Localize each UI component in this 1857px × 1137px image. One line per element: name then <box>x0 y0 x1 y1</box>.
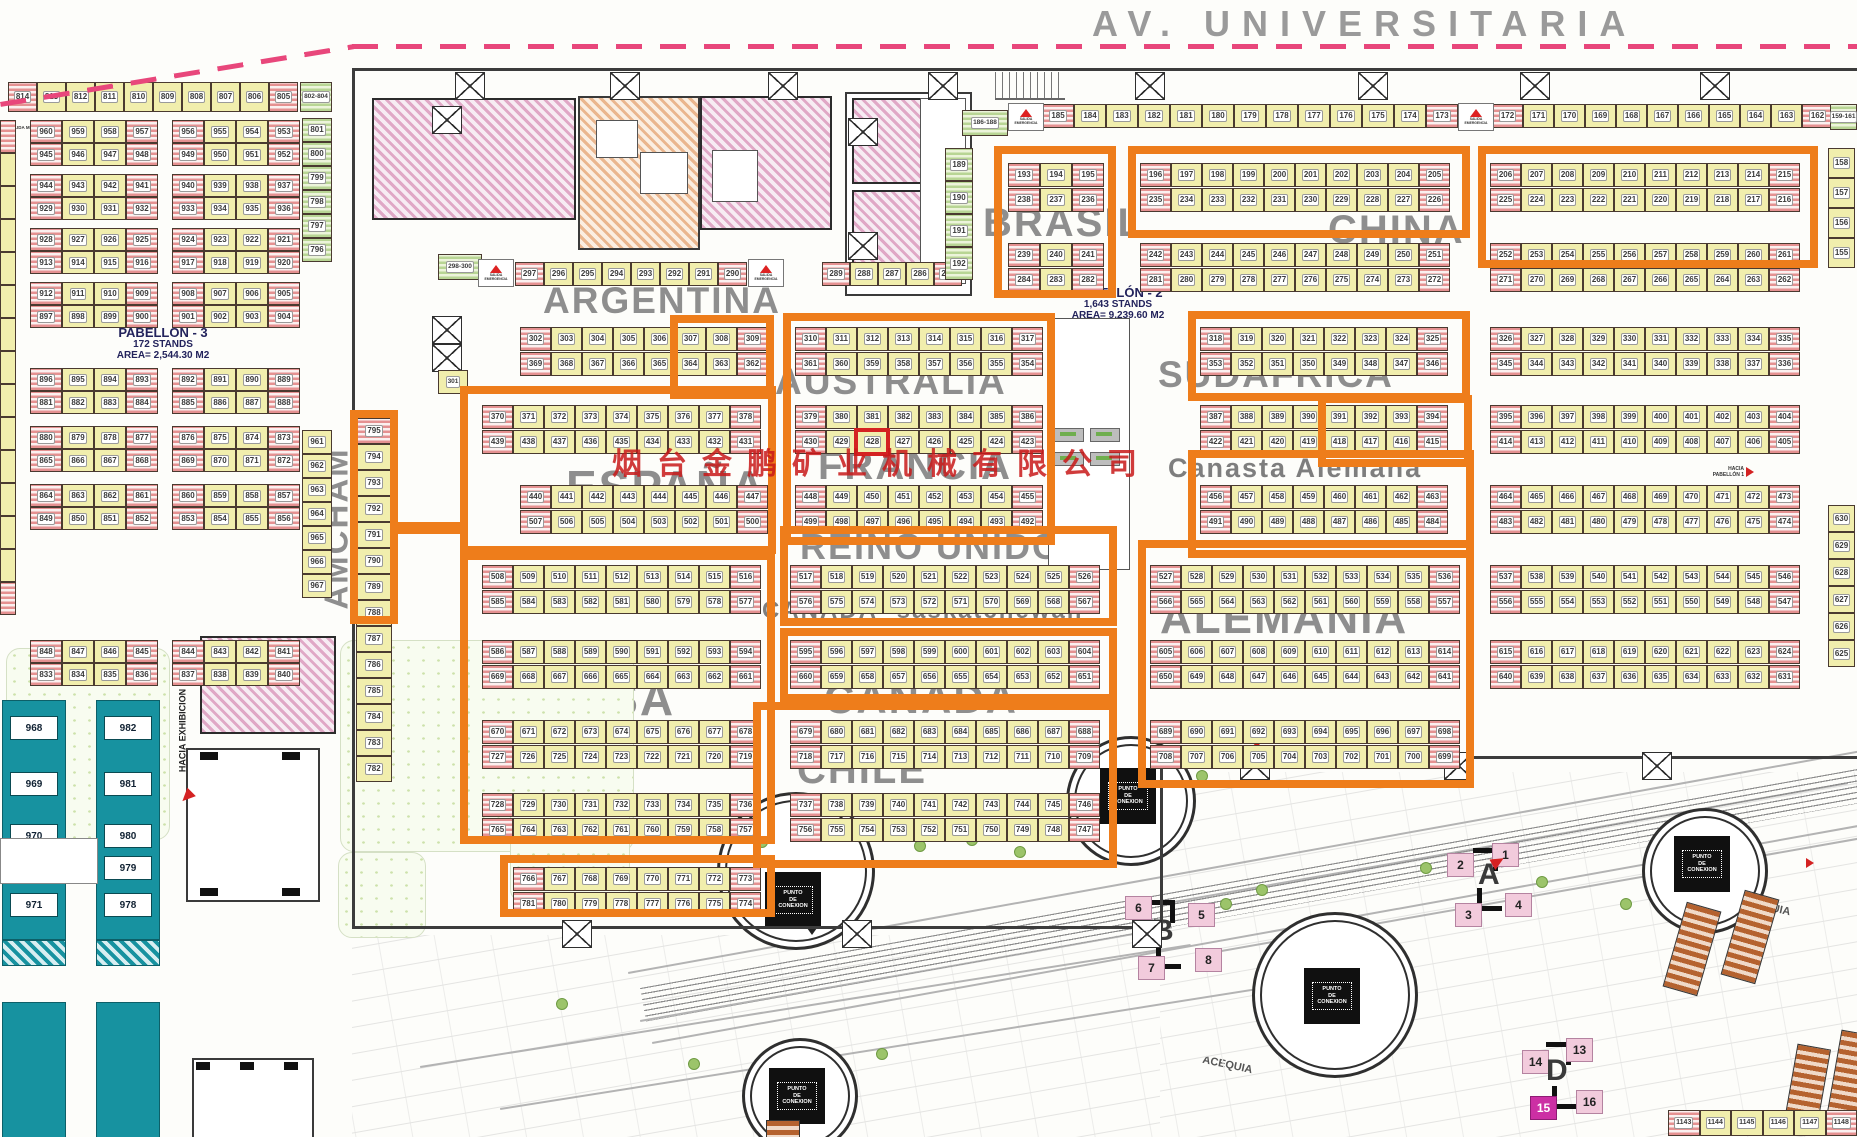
stand-number: 885 <box>179 397 196 409</box>
stand-number: 545 <box>1745 571 1762 583</box>
stand-number: 272 <box>1426 274 1443 286</box>
stand-946: 946 <box>62 143 94 166</box>
stand-number: 948 <box>133 149 150 161</box>
highlight-bar <box>396 522 464 534</box>
exterior-stand-980: 980 <box>104 824 152 848</box>
stand-869: 869 <box>172 449 204 472</box>
tree-icon <box>688 1058 700 1070</box>
stand-number: 933 <box>179 203 196 215</box>
stand-cell <box>0 384 16 417</box>
stand-868: 868 <box>126 449 158 472</box>
stand-number: 839 <box>243 669 260 681</box>
connection-point-label: PUNTODECONEXION <box>777 1082 816 1111</box>
stand-248: 248 <box>1326 243 1357 267</box>
stand-number: 905 <box>275 288 292 300</box>
stand-952: 952 <box>268 143 300 166</box>
stand-898: 898 <box>62 305 94 328</box>
stand-409: 409 <box>1645 430 1676 454</box>
stand-number: 845 <box>133 646 150 658</box>
stand-631: 631 <box>1769 665 1800 689</box>
stand-number: 273 <box>1395 274 1412 286</box>
stand-number: 367 <box>589 358 606 370</box>
exterior-stand-968: 968 <box>10 716 58 740</box>
stand-806: 806 <box>240 82 269 112</box>
shaft-x-icon <box>1642 752 1672 780</box>
stand-number: 538 <box>1528 571 1545 583</box>
stand-859: 859 <box>204 484 236 507</box>
stand-615: 615 <box>1490 640 1521 664</box>
stand-number: 798 <box>308 196 325 208</box>
stand-340: 340 <box>1645 352 1676 376</box>
stand-number: 931 <box>101 203 118 215</box>
stand-925: 925 <box>126 228 158 251</box>
stand-243: 243 <box>1171 243 1202 267</box>
stand-number: 409 <box>1652 436 1669 448</box>
stand-483: 483 <box>1490 510 1521 534</box>
stand-number: 920 <box>275 257 292 269</box>
stand-397: 397 <box>1552 405 1583 429</box>
stand-number: 540 <box>1590 571 1607 583</box>
stand-165: 165 <box>1709 104 1740 128</box>
stand-916: 916 <box>126 251 158 274</box>
highlight-box <box>994 146 1116 298</box>
stand-number: 303 <box>558 333 575 345</box>
stand-277: 277 <box>1264 268 1295 292</box>
stand-cell <box>0 318 16 351</box>
stand-473: 473 <box>1769 485 1800 509</box>
stand-number: 334 <box>1745 333 1762 345</box>
stand-190: 190 <box>945 181 973 214</box>
stand-956: 956 <box>172 120 204 143</box>
connection-point: PUNTODECONEXION <box>1675 837 1729 891</box>
stand-number: 475 <box>1745 516 1762 528</box>
stand-number: 265 <box>1683 274 1700 286</box>
stand-476: 476 <box>1707 510 1738 534</box>
stand-801: 801 <box>302 118 332 142</box>
stand-800: 800 <box>302 142 332 166</box>
stand-number: 286 <box>911 268 928 280</box>
stand-799: 799 <box>302 166 332 190</box>
stand-305: 305 <box>613 327 644 351</box>
stand-number: 337 <box>1745 358 1762 370</box>
marker-square-16: 16 <box>1576 1090 1603 1114</box>
stand-number: 541 <box>1621 571 1638 583</box>
stand-1147: 1147 <box>1794 1110 1826 1136</box>
stand-number: 483 <box>1497 516 1514 528</box>
stand-899: 899 <box>94 305 126 328</box>
stand-number: 159-161 <box>1830 111 1857 123</box>
stand-838: 838 <box>204 663 236 686</box>
stand-number: 875 <box>211 432 228 444</box>
stand-number: 411 <box>1590 436 1607 448</box>
stand-number: 616 <box>1528 646 1545 658</box>
stand-number: 405 <box>1776 436 1793 448</box>
stand-number: 1145 <box>1737 1117 1756 1129</box>
stand-number: 898 <box>69 311 86 323</box>
stand-number: 837 <box>179 669 196 681</box>
stand-number: 192 <box>950 258 967 270</box>
stand-number: 880 <box>37 432 54 444</box>
stand-950: 950 <box>204 143 236 166</box>
stand-number: 340 <box>1652 358 1669 370</box>
stand-807: 807 <box>211 82 240 112</box>
stand-number: 871 <box>243 455 260 467</box>
stand-966: 966 <box>302 550 332 574</box>
stand-number: 852 <box>133 513 150 525</box>
stand-556: 556 <box>1490 590 1521 614</box>
stand-169: 169 <box>1585 104 1616 128</box>
stand-860: 860 <box>172 484 204 507</box>
stand-number: 903 <box>243 311 260 323</box>
wall <box>352 926 1162 929</box>
stand-number: 627 <box>1833 594 1850 606</box>
stand-number: 406 <box>1745 436 1762 448</box>
stand-942: 942 <box>94 174 126 197</box>
stand-338: 338 <box>1707 352 1738 376</box>
stand-number: 464 <box>1497 491 1514 503</box>
stand-number: 858 <box>243 490 260 502</box>
stand-967: 967 <box>302 574 332 598</box>
stand-number: 544 <box>1714 571 1731 583</box>
stand-294: 294 <box>602 262 631 286</box>
marker-square-15: 15 <box>1530 1096 1557 1120</box>
exterior-stand-981: 981 <box>104 772 152 796</box>
stand-number: 178 <box>1273 110 1290 122</box>
stand-number: 629 <box>1833 540 1850 552</box>
stand-cell <box>0 351 16 384</box>
stand-892: 892 <box>172 368 204 391</box>
stand-888: 888 <box>268 391 300 414</box>
stand-number: 304 <box>589 333 606 345</box>
stand-184: 184 <box>1074 104 1106 128</box>
stand-number: 336 <box>1776 358 1793 370</box>
marker-square-4: 4 <box>1505 893 1532 917</box>
stand-number: 342 <box>1590 358 1607 370</box>
stand-number: 964 <box>308 508 325 520</box>
stand-number: 928 <box>37 234 54 246</box>
stand-number: 862 <box>101 490 118 502</box>
stand-280: 280 <box>1171 268 1202 292</box>
direction-arrow-icon <box>1746 467 1754 477</box>
stand-number: 403 <box>1745 411 1762 423</box>
stand-number: 914 <box>69 257 86 269</box>
stand-number: 278 <box>1240 274 1257 286</box>
stand-547: 547 <box>1769 590 1800 614</box>
stand-637: 637 <box>1583 665 1614 689</box>
stand-number: 843 <box>211 646 228 658</box>
stand-344: 344 <box>1521 352 1552 376</box>
stand-number: 266 <box>1652 274 1669 286</box>
stand-number: 155 <box>1833 247 1850 259</box>
stand-number: 622 <box>1714 646 1731 658</box>
stand-289: 289 <box>822 262 850 286</box>
stand-number: 290 <box>724 268 741 280</box>
stand-number: 850 <box>69 513 86 525</box>
stand-number: 864 <box>37 490 54 502</box>
stand-627: 627 <box>1828 586 1855 613</box>
stand-246: 246 <box>1264 243 1295 267</box>
stand-387: 387 <box>1200 405 1231 429</box>
stand-632: 632 <box>1738 665 1769 689</box>
stand-267: 267 <box>1614 268 1645 292</box>
tree-icon <box>1536 876 1548 888</box>
stand-901: 901 <box>172 305 204 328</box>
stand-464: 464 <box>1490 485 1521 509</box>
stand-number: 175 <box>1369 110 1386 122</box>
stand-number: 952 <box>275 149 292 161</box>
stand-785: 785 <box>356 678 392 704</box>
stand-number: 470 <box>1683 491 1700 503</box>
stand-number: 876 <box>179 432 196 444</box>
stand-number: 481 <box>1559 516 1576 528</box>
stand-number: 854 <box>211 513 228 525</box>
highlight-box <box>780 628 1117 702</box>
stand-288: 288 <box>850 262 878 286</box>
stand-548: 548 <box>1738 590 1769 614</box>
stand-616: 616 <box>1521 640 1552 664</box>
stand-number: 294 <box>608 268 625 280</box>
stand-number: 959 <box>69 126 86 138</box>
stand-939: 939 <box>204 174 236 197</box>
stand-cell <box>0 450 16 483</box>
stand-881: 881 <box>30 391 62 414</box>
stand-number: 163 <box>1778 110 1795 122</box>
stand-883: 883 <box>94 391 126 414</box>
stand-number: 249 <box>1364 249 1381 261</box>
stand-274: 274 <box>1357 268 1388 292</box>
stand-number: 873 <box>275 432 292 444</box>
stand-number: 860 <box>179 490 196 502</box>
stand-number: 326 <box>1497 333 1514 345</box>
shaft-x-icon <box>562 920 592 948</box>
stand-number: 961 <box>308 436 325 448</box>
stand-number: 465 <box>1528 491 1545 503</box>
stand-number: 420 <box>1269 436 1286 448</box>
stand-number: 891 <box>211 374 228 386</box>
stand-number: 341 <box>1621 358 1638 370</box>
stand-475: 475 <box>1738 510 1769 534</box>
bench-plant <box>1060 432 1076 436</box>
stand-185: 185 <box>1042 104 1074 128</box>
stand-number: 262 <box>1776 274 1793 286</box>
stand-900: 900 <box>126 305 158 328</box>
stand-173: 173 <box>1426 104 1458 128</box>
stand-542: 542 <box>1645 565 1676 589</box>
stand-number: 271 <box>1497 274 1514 286</box>
stand-181: 181 <box>1170 104 1202 128</box>
stand-923: 923 <box>204 228 236 251</box>
stand-number: 185 <box>1049 110 1066 122</box>
stand-number: 421 <box>1238 436 1255 448</box>
stand-number: 330 <box>1621 333 1638 345</box>
stand-number: 468 <box>1621 491 1638 503</box>
stand-number: 966 <box>308 556 325 568</box>
stand-920: 920 <box>268 251 300 274</box>
exterior-stand-982: 982 <box>104 716 152 740</box>
stand-1146: 1146 <box>1763 1110 1795 1136</box>
stand-number: 546 <box>1776 571 1793 583</box>
stand-number: 414 <box>1497 436 1514 448</box>
stand-number: 947 <box>101 149 118 161</box>
stand-number: 296 <box>550 268 567 280</box>
stand-number: 836 <box>133 669 150 681</box>
stand-964: 964 <box>302 502 332 526</box>
stand-number: 943 <box>69 180 86 192</box>
stand-171: 171 <box>1523 104 1554 128</box>
stand-250: 250 <box>1388 243 1419 267</box>
stand-number: 469 <box>1652 491 1669 503</box>
stand-number: 884 <box>133 397 150 409</box>
stand-266: 266 <box>1645 268 1676 292</box>
stand-183: 183 <box>1106 104 1138 128</box>
stand-number: 846 <box>101 646 118 658</box>
stand-179: 179 <box>1234 104 1266 128</box>
stand-619: 619 <box>1614 640 1645 664</box>
stand-number: 366 <box>620 358 637 370</box>
stand-287: 287 <box>878 262 906 286</box>
stand-167: 167 <box>1647 104 1678 128</box>
footbridge <box>766 1120 800 1137</box>
stand-number: 625 <box>1833 648 1850 660</box>
stand-926: 926 <box>94 228 126 251</box>
stand-number: 893 <box>133 374 150 386</box>
stand-396: 396 <box>1521 405 1552 429</box>
stand-910: 910 <box>94 282 126 305</box>
stand-620: 620 <box>1645 640 1676 664</box>
stand-875: 875 <box>204 426 236 449</box>
stand-281: 281 <box>1140 268 1171 292</box>
stand-number: 305 <box>620 333 637 345</box>
shaft-x-icon <box>432 344 462 372</box>
stand-number: 847 <box>69 646 86 658</box>
stand-number: 938 <box>243 180 260 192</box>
fixture <box>282 752 300 760</box>
stand-541: 541 <box>1614 565 1645 589</box>
stand-782: 782 <box>356 756 392 782</box>
stand-847: 847 <box>62 640 94 663</box>
stand-192: 192 <box>945 247 973 280</box>
tree-icon <box>1256 884 1268 896</box>
text-label: 172 STANDS <box>133 340 193 350</box>
area-label-argentina: ARGENTINA <box>543 282 781 319</box>
shaft-x-icon <box>768 72 798 100</box>
stand-number: 301 <box>446 376 461 388</box>
stand-number: 881 <box>37 397 54 409</box>
stand-177: 177 <box>1298 104 1330 128</box>
exterior-stand-cap <box>2 940 66 966</box>
stand-number: 369 <box>527 358 544 370</box>
stand-number: 889 <box>275 374 292 386</box>
stand-number: 957 <box>133 126 150 138</box>
exterior-stand-cap <box>96 940 160 966</box>
stand-477: 477 <box>1676 510 1707 534</box>
stand-number: 387 <box>1207 411 1224 423</box>
stand-number: 182 <box>1145 110 1162 122</box>
stand-cell <box>0 582 16 615</box>
stand-264: 264 <box>1707 268 1738 292</box>
tree-icon <box>1620 898 1632 910</box>
stand-835: 835 <box>94 663 126 686</box>
stand-number: 343 <box>1559 358 1576 370</box>
stand-number: 250 <box>1395 249 1412 261</box>
stand-862: 862 <box>94 484 126 507</box>
stand-405: 405 <box>1769 430 1800 454</box>
shaft-x-icon <box>1135 72 1165 100</box>
stand-622: 622 <box>1707 640 1738 664</box>
stand-877: 877 <box>126 426 158 449</box>
stand-number: 165 <box>1716 110 1733 122</box>
stand-number: 275 <box>1333 274 1350 286</box>
street-label: AV. UNIVERSITARIA <box>1092 6 1637 42</box>
stand-number: 962 <box>308 460 325 472</box>
stand-number: 934 <box>211 203 228 215</box>
stand-cell <box>0 417 16 450</box>
stand-891: 891 <box>204 368 236 391</box>
stand-896: 896 <box>30 368 62 391</box>
stand-number: 263 <box>1745 274 1762 286</box>
stand-469: 469 <box>1645 485 1676 509</box>
stand-number: 894 <box>101 374 118 386</box>
hacia-chip: HACIA PABELLÓN 1 <box>1700 466 1754 478</box>
stand-262: 262 <box>1769 268 1800 292</box>
stand-922: 922 <box>236 228 268 251</box>
stand-636: 636 <box>1614 665 1645 689</box>
stand-number: 281 <box>1147 274 1164 286</box>
stand-871: 871 <box>236 449 268 472</box>
stand-853: 853 <box>172 507 204 530</box>
stand-number: 184 <box>1081 110 1098 122</box>
connection-point-label: PUNTODECONEXION <box>1682 850 1721 879</box>
text-label: 1,643 STANDS <box>1084 300 1152 310</box>
stand-1143: 1143 <box>1668 1110 1700 1136</box>
stand-number: 245 <box>1240 249 1257 261</box>
stand-number: 958 <box>101 126 118 138</box>
stand-866: 866 <box>62 449 94 472</box>
stand-480: 480 <box>1583 510 1614 534</box>
stand-629: 629 <box>1828 532 1855 559</box>
stand-number: 397 <box>1559 411 1576 423</box>
stand-833: 833 <box>30 663 62 686</box>
stand-number: 872 <box>275 455 292 467</box>
stand-number: 868 <box>133 455 150 467</box>
stand-number: 922 <box>243 234 260 246</box>
stand-number: 404 <box>1776 411 1793 423</box>
stand-879: 879 <box>62 426 94 449</box>
stand-number: 170 <box>1561 110 1578 122</box>
stand-number: 174 <box>1401 110 1418 122</box>
stand-843: 843 <box>204 640 236 663</box>
stand-number: 167 <box>1654 110 1671 122</box>
stand-935: 935 <box>236 197 268 220</box>
stand-303: 303 <box>551 327 582 351</box>
stand-number: 162 <box>1809 110 1826 122</box>
stand-276: 276 <box>1295 268 1326 292</box>
stand-number: 331 <box>1652 333 1669 345</box>
stand-172: 172 <box>1492 104 1523 128</box>
stand-904: 904 <box>268 305 300 328</box>
stand-921: 921 <box>268 228 300 251</box>
stand-number: 389 <box>1269 411 1286 423</box>
stand-478: 478 <box>1645 510 1676 534</box>
stand-number: 890 <box>243 374 260 386</box>
stand-number: 886 <box>211 397 228 409</box>
stand-number: 853 <box>179 513 196 525</box>
stand-number: 841 <box>275 646 292 658</box>
stand-number: 298-300 <box>446 261 474 273</box>
stand-number: 474 <box>1776 516 1793 528</box>
stand-number: 408 <box>1683 436 1700 448</box>
stand-550: 550 <box>1676 590 1707 614</box>
